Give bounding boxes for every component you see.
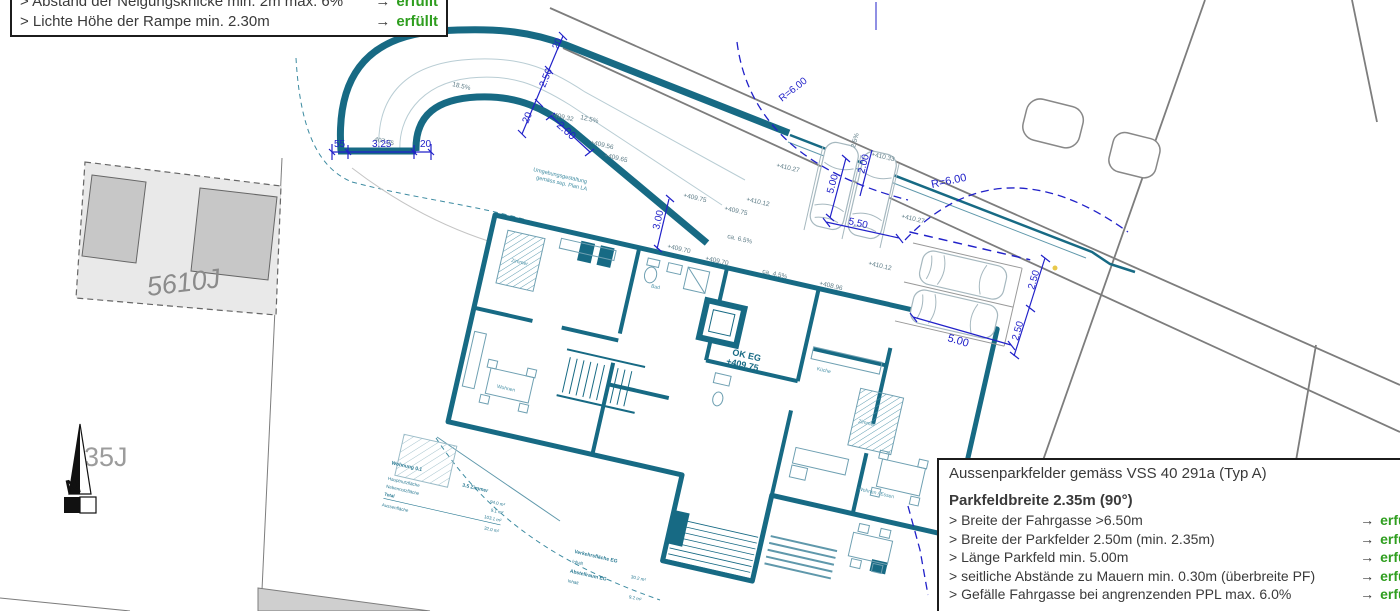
- radius-label: R=6.00: [777, 75, 810, 104]
- building: OK EG +409.75 Zimmer Bad Küche Zimmer Wo…: [374, 205, 997, 611]
- svg-text:2.50: 2.50: [538, 67, 556, 90]
- svg-text:+409.75: +409.75: [724, 205, 749, 217]
- parking-note-subtitle: Parkfeldbreite 2.35m (90°): [949, 492, 1400, 511]
- status-badge: erfüllt: [1380, 585, 1400, 604]
- svg-text:Inhalt: Inhalt: [567, 578, 580, 585]
- svg-text:2.50: 2.50: [1026, 269, 1042, 291]
- svg-text:ca. 6.5%: ca. 6.5%: [727, 233, 753, 246]
- checklist-label: > Gefälle Fahrgasse bei angrenzenden PPL…: [949, 585, 1348, 604]
- svg-text:2.00: 2.00: [554, 119, 578, 142]
- parking-checklist-box: Aussenparkfelder gemäss VSS 40 291a (Typ…: [937, 458, 1400, 611]
- svg-text:3.5 Zimmer: 3.5 Zimmer: [462, 483, 489, 495]
- svg-text:55: 55: [334, 139, 346, 150]
- svg-text:+410.12: +410.12: [868, 260, 893, 272]
- site-plan-screenshot: 5610J 35J N: [0, 0, 1400, 611]
- svg-text:+410.27: +410.27: [776, 162, 801, 174]
- arrow-icon: →: [370, 12, 390, 32]
- arrow-icon: →: [370, 0, 390, 12]
- svg-text:18.5%: 18.5%: [452, 81, 472, 92]
- status-badge: erfüllt: [1380, 567, 1400, 586]
- svg-text:32.0 m²: 32.0 m²: [484, 525, 500, 533]
- pergola: [765, 536, 838, 578]
- svg-text:Total: Total: [384, 492, 395, 499]
- radius-label: R=6.00: [930, 172, 967, 191]
- area-block: Verkehrsfläche EG Inhalt 30.2 m² Abstell…: [567, 549, 650, 602]
- svg-text:+410.27: +410.27: [901, 213, 926, 225]
- status-badge: erfüllt: [1380, 530, 1400, 549]
- arrow-icon: →: [1354, 511, 1374, 530]
- arrow-icon: →: [1354, 567, 1374, 586]
- status-badge: erfüllt: [396, 12, 438, 32]
- svg-text:9.1 m²: 9.1 m²: [490, 507, 504, 515]
- svg-text:+409.75: +409.75: [683, 192, 708, 204]
- checklist-label: > seitliche Abstände zu Mauern min. 0.30…: [949, 567, 1348, 586]
- svg-text:+410.12: +410.12: [746, 196, 771, 208]
- arrow-icon: →: [1354, 548, 1374, 567]
- checklist-row: > Länge Parkfeld min. 5.00m → erfüllt: [949, 548, 1400, 567]
- parking-note-title: Aussenparkfelder gemäss VSS 40 291a (Typ…: [949, 465, 1400, 484]
- checklist-label: > Lichte Höhe der Rampe min. 2.30m: [20, 12, 364, 32]
- checklist-row: > seitliche Abstände zu Mauern min. 0.30…: [949, 567, 1400, 586]
- svg-text:20: 20: [521, 110, 536, 125]
- north-arrow: 35J N: [64, 424, 128, 513]
- street-area: [258, 588, 430, 611]
- arrow-icon: →: [1354, 585, 1374, 604]
- svg-text:20: 20: [420, 139, 432, 150]
- checklist-row: > Abstand der Neigungsknicke min. 2m max…: [20, 0, 438, 12]
- ramp-checklist-box: > Abstand der Neigungsknicke min. 2m max…: [10, 0, 448, 37]
- svg-text:94.0 m²: 94.0 m²: [490, 499, 506, 507]
- svg-text:3.00: 3.00: [651, 209, 666, 231]
- street-parcel-label: 35J: [84, 442, 128, 472]
- svg-text:12.5%: 12.5%: [580, 114, 600, 125]
- svg-text:30.2 m²: 30.2 m²: [630, 574, 646, 582]
- survey-dot: [1053, 266, 1058, 271]
- checklist-row: > Lichte Höhe der Rampe min. 2.30m → erf…: [20, 12, 438, 32]
- checklist-row: > Breite der Parkfelder 2.50m (min. 2.35…: [949, 530, 1400, 549]
- neighbor-parcel: 5610J: [76, 162, 281, 315]
- status-badge: erfüllt: [1380, 511, 1400, 530]
- svg-text:2.50: 2.50: [1010, 320, 1026, 342]
- arrow-icon: →: [1354, 530, 1374, 549]
- svg-text:Aussenfläche: Aussenfläche: [381, 502, 409, 513]
- checklist-label: > Abstand der Neigungsknicke min. 2m max…: [20, 0, 364, 12]
- small-structures: [1020, 96, 1163, 180]
- svg-text:9.2 m²: 9.2 m²: [628, 594, 642, 602]
- status-badge: erfüllt: [1380, 548, 1400, 567]
- checklist-label: > Breite der Fahrgasse >6.50m: [949, 511, 1348, 530]
- lift-shaft: [699, 300, 744, 345]
- status-badge: erfüllt: [396, 0, 438, 12]
- landscape-note: Umgebungsgestaltung gemäss sep. Plan LA: [533, 167, 588, 193]
- checklist-row: > Breite der Fahrgasse >6.50m → erfüllt: [949, 511, 1400, 530]
- checklist-label: > Länge Parkfeld min. 5.00m: [949, 548, 1348, 567]
- checklist-label: > Breite der Parkfelder 2.50m (min. 2.35…: [949, 530, 1348, 549]
- checklist-row: > Gefälle Fahrgasse bei angrenzenden PPL…: [949, 585, 1400, 604]
